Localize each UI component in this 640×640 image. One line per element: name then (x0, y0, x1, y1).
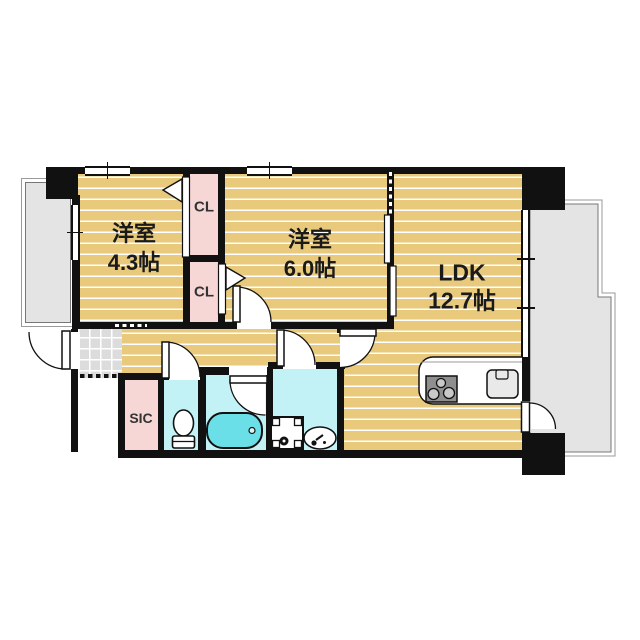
label-ldk-size: 12.7帖 (428, 290, 496, 313)
wall-bedrooms-bottom (72, 322, 394, 329)
left-balcony (25, 182, 71, 323)
wall-sic-left (118, 373, 125, 458)
wall-closet-bedroom-center (218, 170, 225, 329)
genkan-tile-floor (78, 326, 122, 378)
right-balcony (530, 204, 611, 452)
doorway-bathroom (229, 367, 267, 375)
floor-bathroom (202, 370, 271, 454)
label-ldk-name: LDK (438, 262, 485, 285)
floor-bedroom-west (76, 170, 187, 326)
doorway-toilet (169, 373, 200, 380)
window-tick (107, 162, 109, 179)
wall-hall-stub (337, 326, 344, 333)
floor-washroom (271, 364, 341, 454)
doorway-entrance (70, 332, 80, 369)
window-tick (269, 162, 271, 179)
window-balcony-slider (521, 210, 530, 357)
floor-ldk-lower (340, 322, 394, 454)
window-tick (517, 258, 535, 260)
wall-toilet-bathroom (198, 370, 206, 454)
door-leaf (62, 331, 70, 369)
wall-sic-toilet (158, 376, 164, 454)
wall-washroom-ldk (337, 368, 344, 458)
pillar-bottom-right (522, 433, 565, 475)
window-tick (517, 307, 535, 309)
entrance-door (29, 331, 70, 369)
label-bedroom-west-size: 4.3帖 (108, 252, 161, 274)
label-bedroom-west-name: 洋室 (112, 223, 156, 245)
label-shoes-in-closet: SIC (129, 411, 152, 425)
doorway-bedroom-center (237, 322, 271, 329)
floor-toilet-room (161, 376, 202, 454)
wall-bathroom-washroom (266, 367, 273, 454)
pillar-top-left (46, 167, 78, 199)
door-swing-arc (29, 332, 66, 369)
label-closet-upper: CL (194, 200, 214, 215)
floor-closet-upper (187, 170, 222, 262)
label-closet-lower: CL (194, 285, 214, 300)
wall-partition-bedroom-ldk (387, 170, 394, 329)
floorplan-canvas: 洋室 4.3帖 洋室 6.0帖 LDK 12.7帖 CL CL SIC (0, 0, 640, 640)
door-swing-area (530, 403, 556, 429)
label-bedroom-center-size: 6.0帖 (284, 258, 337, 280)
door-swing-arc (530, 403, 556, 429)
pillar-top-right (522, 167, 565, 210)
label-bedroom-center-name: 洋室 (288, 229, 332, 251)
door-swing-area (29, 332, 66, 369)
window-tick (67, 232, 83, 234)
wall-bedroom-west-closet (183, 170, 190, 329)
doorway-balcony (521, 401, 531, 432)
right-balcony-outline (526, 200, 615, 456)
doorway-washroom (283, 362, 316, 369)
